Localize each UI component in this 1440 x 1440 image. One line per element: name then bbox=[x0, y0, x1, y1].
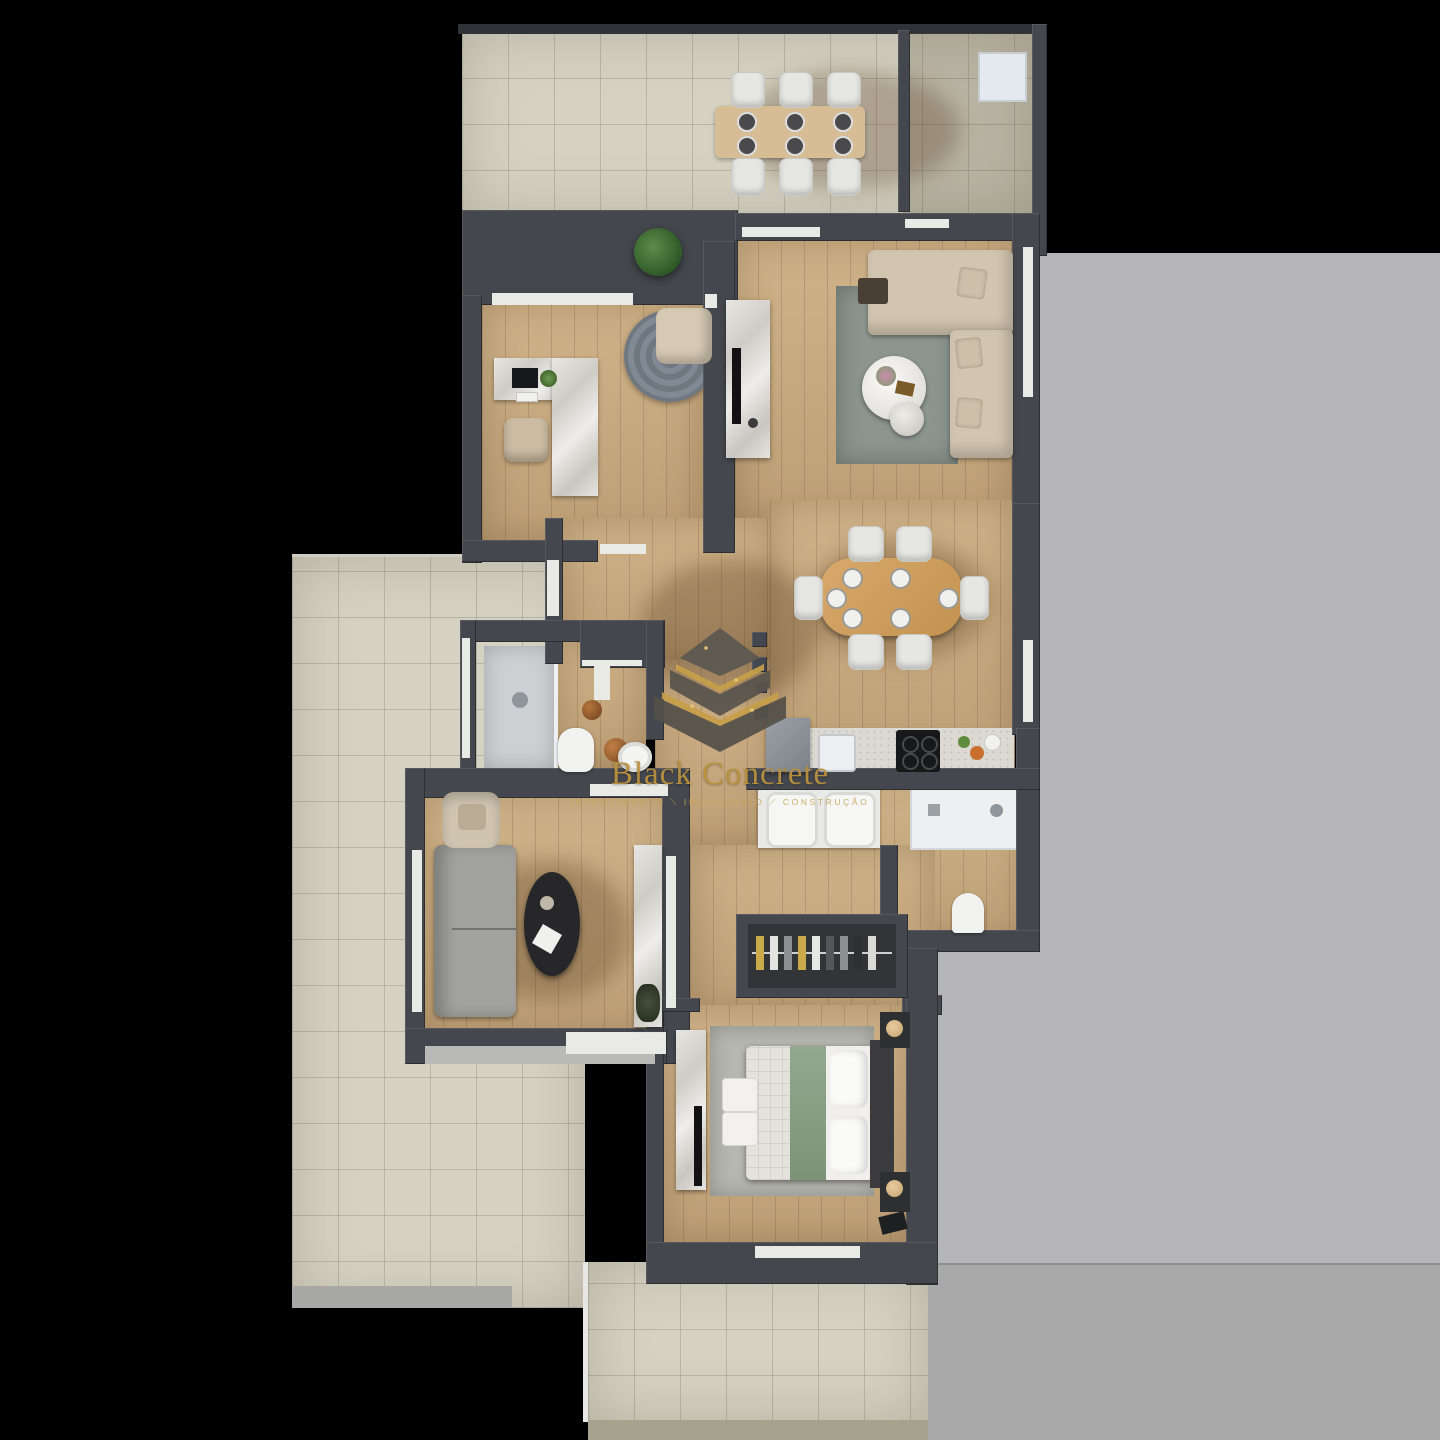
toilet-2 bbox=[952, 893, 984, 933]
wardrobe-clothes bbox=[812, 936, 820, 970]
utility-appliance bbox=[978, 52, 1027, 102]
cooktop-burner bbox=[921, 753, 938, 770]
bath1-window bbox=[462, 638, 470, 758]
lounge-door-frame bbox=[590, 784, 668, 796]
terrace-plate bbox=[785, 136, 805, 156]
bottom-terrace-strip bbox=[588, 1420, 928, 1440]
terrace-chair bbox=[731, 158, 765, 196]
dining-chair bbox=[848, 526, 884, 562]
bath1-door-frame bbox=[594, 664, 610, 700]
terrace-chair bbox=[731, 72, 765, 108]
divider-frame-bit bbox=[705, 294, 717, 308]
cooktop-burner bbox=[902, 753, 919, 770]
stool-copper bbox=[582, 700, 602, 720]
desk-plant bbox=[540, 370, 557, 387]
sofa-pillow bbox=[955, 337, 984, 370]
bottom-terrace-floor bbox=[588, 1262, 928, 1422]
terrace-plate bbox=[833, 112, 853, 132]
bed-green-runner bbox=[790, 1046, 826, 1180]
terrace-chair bbox=[779, 72, 813, 108]
dining-plate bbox=[890, 608, 911, 629]
media-unit-dark bbox=[858, 278, 888, 304]
wardrobe-clothes bbox=[854, 936, 862, 970]
office-bottom-wall bbox=[462, 540, 598, 562]
bedroom-east-wall bbox=[906, 948, 938, 1285]
office-lounge-chair bbox=[656, 308, 712, 364]
dining-plate bbox=[890, 568, 911, 589]
bottom-gray-shaded bbox=[925, 1263, 1440, 1440]
bath1-niche-trim bbox=[582, 660, 642, 666]
monitor bbox=[512, 368, 538, 388]
bath1-right-wall bbox=[646, 620, 664, 740]
floor-plan-render: Black Concrete INVESTIMENTO ⟍ IMOBILIÁRI… bbox=[0, 0, 1440, 1440]
wardrobe-clothes bbox=[840, 936, 848, 970]
lounge-table-vase bbox=[540, 896, 554, 910]
office-left-wall bbox=[462, 295, 482, 563]
bed-ottoman bbox=[722, 1112, 758, 1146]
bed-ottoman bbox=[722, 1078, 758, 1112]
living-east-window bbox=[1023, 247, 1033, 397]
lounge-right-frame bbox=[666, 856, 676, 1008]
lounge-console-plant bbox=[636, 984, 660, 1022]
lounge-patio-slider bbox=[412, 850, 422, 1012]
lounge-sofa-cushion-line bbox=[452, 928, 516, 930]
dining-chair bbox=[960, 576, 989, 620]
cooktop-burner bbox=[902, 736, 919, 753]
wardrobe-clothes bbox=[798, 936, 806, 970]
terrace-chair bbox=[779, 158, 813, 196]
bedroom-tv bbox=[694, 1106, 702, 1186]
round-basin bbox=[618, 742, 652, 772]
vanity-sink bbox=[766, 792, 818, 848]
wall-band-below-terrace bbox=[462, 210, 738, 305]
nightstand-lamp bbox=[886, 1020, 903, 1037]
terrace-plate bbox=[737, 112, 757, 132]
shower-2-drain bbox=[928, 804, 940, 816]
east-wall-bath2 bbox=[1016, 728, 1040, 950]
fridge bbox=[766, 718, 810, 772]
wardrobe-clothes bbox=[784, 936, 792, 970]
lounge-bottom-white bbox=[566, 1032, 666, 1054]
bed-pillow bbox=[830, 1116, 868, 1174]
cooktop-burner bbox=[921, 736, 938, 753]
lounge-coffee-table-oval bbox=[524, 872, 580, 976]
toilet-1 bbox=[558, 728, 594, 772]
dining-chair bbox=[896, 526, 932, 562]
bed-pillow bbox=[830, 1050, 868, 1108]
desk-chair bbox=[504, 418, 548, 462]
vanity-sink bbox=[824, 792, 876, 848]
shower-head-icon bbox=[512, 692, 528, 708]
dining-plate bbox=[826, 588, 847, 609]
plant bbox=[634, 228, 682, 276]
sofa-pillow bbox=[956, 266, 988, 300]
dining-chair bbox=[896, 634, 932, 670]
dining-plate bbox=[842, 608, 863, 629]
right-gray-panel bbox=[1036, 253, 1440, 1440]
wardrobe-clothes bbox=[770, 936, 778, 970]
tv-screen bbox=[732, 348, 741, 424]
lounge-armchair-pillow bbox=[458, 804, 486, 830]
headboard bbox=[870, 1040, 894, 1188]
terrace-chair bbox=[827, 72, 861, 108]
console-decor bbox=[748, 418, 758, 428]
terrace-chair bbox=[827, 158, 861, 196]
dining-chair bbox=[794, 576, 823, 620]
shelf-square bbox=[754, 705, 768, 719]
dining-east-window bbox=[1023, 640, 1033, 722]
shelf-square bbox=[752, 632, 767, 647]
kitchen-sink bbox=[818, 734, 856, 772]
office-door-threshold bbox=[600, 544, 646, 554]
nightstand-lamp bbox=[886, 1180, 903, 1197]
lounge-sofa bbox=[434, 845, 516, 1017]
patio-bottom-step bbox=[292, 1286, 512, 1308]
side-table-small bbox=[890, 402, 924, 436]
shower-2-head bbox=[990, 804, 1003, 817]
shelf-square bbox=[752, 657, 767, 672]
office-desk-vertical bbox=[552, 358, 598, 496]
dining-plate bbox=[938, 588, 959, 609]
shelf-square bbox=[756, 682, 767, 693]
hall-patio-door bbox=[547, 560, 559, 616]
bottom-terrace-left-edge bbox=[583, 1262, 588, 1422]
kitchen-food-decor bbox=[958, 736, 970, 748]
terrace-plate bbox=[785, 112, 805, 132]
kitchen-food-decor bbox=[970, 746, 984, 760]
sofa-horizontal bbox=[868, 250, 1013, 335]
dining-chair bbox=[848, 634, 884, 670]
office-window-frame bbox=[492, 293, 633, 305]
wardrobe-clothes bbox=[826, 936, 834, 970]
dining-plate bbox=[842, 568, 863, 589]
utility-divider-wall bbox=[898, 30, 910, 212]
coffee-table-flowers bbox=[876, 366, 896, 386]
sofa-pillow bbox=[955, 397, 984, 429]
bedroom-terrace-door bbox=[755, 1246, 860, 1258]
terrace-plate bbox=[833, 136, 853, 156]
living-top-window-frame bbox=[905, 219, 949, 228]
wardrobe-clothes bbox=[756, 936, 764, 970]
keyboard bbox=[516, 392, 538, 402]
terrace-plate bbox=[737, 136, 757, 156]
wardrobe-clothes bbox=[868, 936, 876, 970]
living-terrace-door-frame bbox=[742, 227, 820, 237]
kitchen-dish bbox=[984, 734, 1001, 751]
